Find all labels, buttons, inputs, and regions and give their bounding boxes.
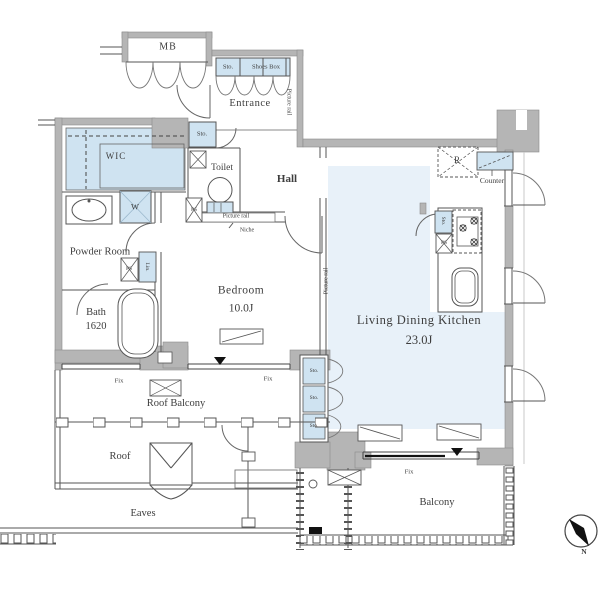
storage-label-ldk-3: Sto. — [310, 423, 319, 429]
picture-rail-label-ldk: Picture rail — [324, 268, 331, 295]
roof-balcony-gate-arc — [222, 425, 248, 451]
ldk-floor-left — [328, 166, 430, 429]
toilet-door-arc — [216, 128, 236, 148]
room-label-mb: MB — [159, 42, 177, 53]
floor-plan-drawing — [0, 0, 605, 603]
fix-window-label-3: Fix — [405, 468, 414, 475]
mb-closet-doors — [126, 62, 206, 88]
skylight — [150, 443, 192, 499]
eaves-step — [235, 470, 297, 488]
area-label-roof-balcony: Roof Balcony — [147, 398, 206, 410]
left-railing — [0, 534, 56, 544]
linen-label: Lin. — [144, 262, 150, 271]
room-label-ldk: Living Dining Kitchen — [357, 314, 481, 328]
area-label-balcony: Balcony — [420, 497, 455, 509]
room-label-powder-room: Powder Room — [68, 244, 132, 259]
fix-window-label-2: Fix — [264, 375, 273, 382]
floor-plan: MB Sto. Shoes Box Entrance Picture rail … — [0, 0, 605, 603]
refrigerator-label: R — [454, 156, 460, 166]
pipe-space-label-powder: PS — [126, 266, 132, 272]
fix-window-label-1: Fix — [115, 377, 124, 384]
room-label-toilet: Toilet — [211, 163, 233, 173]
ac-unit-box — [150, 380, 181, 396]
compass-north-label: N — [581, 548, 586, 556]
room-label-bath: Bath — [86, 307, 106, 319]
bathtub — [118, 289, 158, 358]
area-label-roof: Roof — [110, 451, 131, 463]
shoes-box-label: Shoes Box — [252, 63, 280, 70]
pipe-space-label-kitchen: PS — [441, 240, 447, 246]
area-label-eaves: Eaves — [130, 508, 155, 520]
ldk-south-window — [363, 448, 479, 459]
room-label-wic: WIC — [106, 152, 127, 162]
washing-machine-label: W — [131, 202, 139, 211]
ldk-floor-right — [430, 312, 505, 429]
niche-label: Niche — [240, 228, 254, 235]
picture-rail-label-bedroom: Picture rail — [223, 214, 250, 221]
room-size-bath: 1620 — [86, 321, 107, 333]
storage-label-ldk-1: Sto. — [310, 368, 319, 374]
bedroom-door-arc — [285, 216, 322, 253]
entry-door-arc — [177, 85, 210, 118]
room-size-bedroom: 10.0J — [229, 303, 254, 316]
balcony-equipment-box — [328, 470, 361, 485]
storage-label-kitchen: Sto. — [440, 217, 446, 226]
storage-label-wic: Sto. — [197, 130, 207, 137]
bedroom-closet-marker — [220, 329, 263, 344]
counter-label: Counter — [480, 177, 504, 185]
pipe-space-label-toilet: PS — [191, 207, 197, 213]
kitchen-sink — [452, 268, 478, 306]
storage-label-entrance: Sto. — [223, 63, 233, 70]
vanity-sink — [66, 196, 112, 224]
room-label-entrance: Entrance — [229, 98, 270, 110]
compass-icon — [565, 515, 597, 547]
room-label-hall: Hall — [277, 173, 297, 185]
stove — [453, 210, 481, 253]
pillar-box — [158, 352, 172, 363]
picture-rail-label-entrance: Picture rail — [285, 89, 292, 116]
storage-label-ldk-2: Sto. — [310, 395, 319, 401]
room-size-ldk: 23.0J — [406, 334, 433, 348]
room-label-bedroom: Bedroom — [218, 285, 264, 298]
